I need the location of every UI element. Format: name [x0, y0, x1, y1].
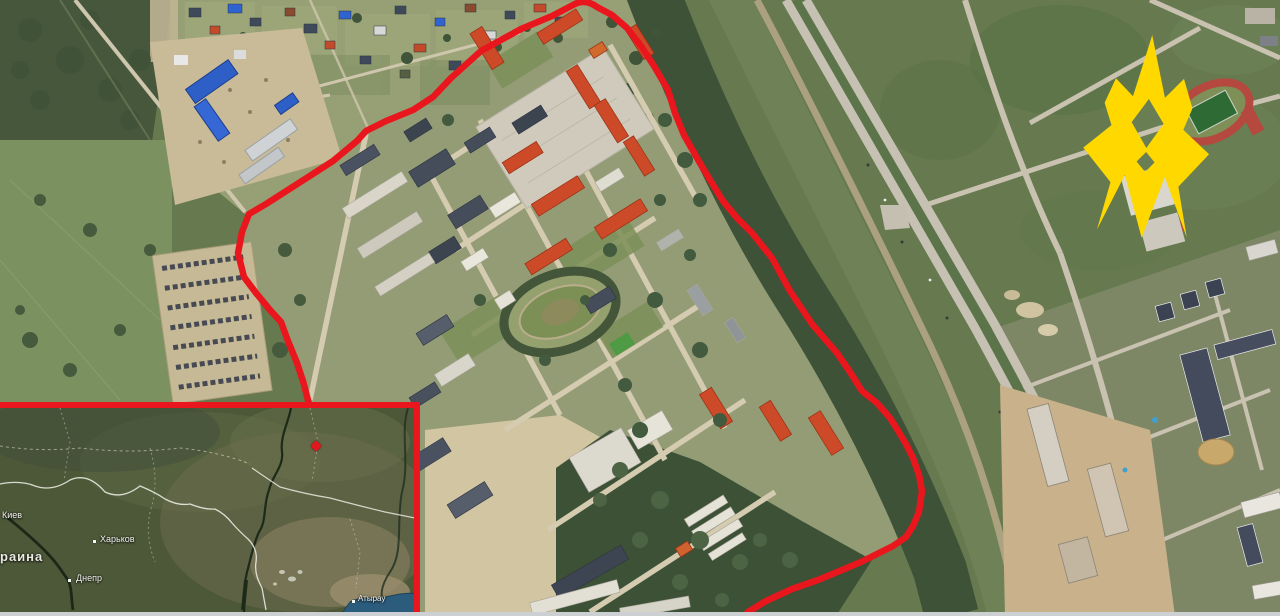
- city-label-dnipro: Днепр: [76, 574, 102, 583]
- inset-border-top: [0, 402, 420, 408]
- atesh-emblem-shape: [1079, 32, 1215, 241]
- city-dot-dnipro: [68, 579, 71, 582]
- city-dot-atyrau: [352, 600, 355, 603]
- country-label-ukraine-partial: раина: [0, 550, 43, 563]
- city-dot-kharkiv: [93, 540, 96, 543]
- inset-border-right: [414, 402, 420, 616]
- city-label-kharkiv: Харьков: [100, 535, 135, 544]
- city-label-atyrau: Атырау: [358, 595, 385, 603]
- vehicle-park: [152, 242, 272, 404]
- inset-terrain: [0, 402, 420, 616]
- bottom-edge-bar: [0, 612, 1280, 616]
- satellite-screenshot: Киев Харьков Днепр раина Атырау: [0, 0, 1280, 616]
- inset-map: Киев Харьков Днепр раина Атырау: [0, 402, 420, 616]
- city-label-kyiv: Киев: [2, 511, 22, 520]
- atesh-logo: [1072, 30, 1222, 245]
